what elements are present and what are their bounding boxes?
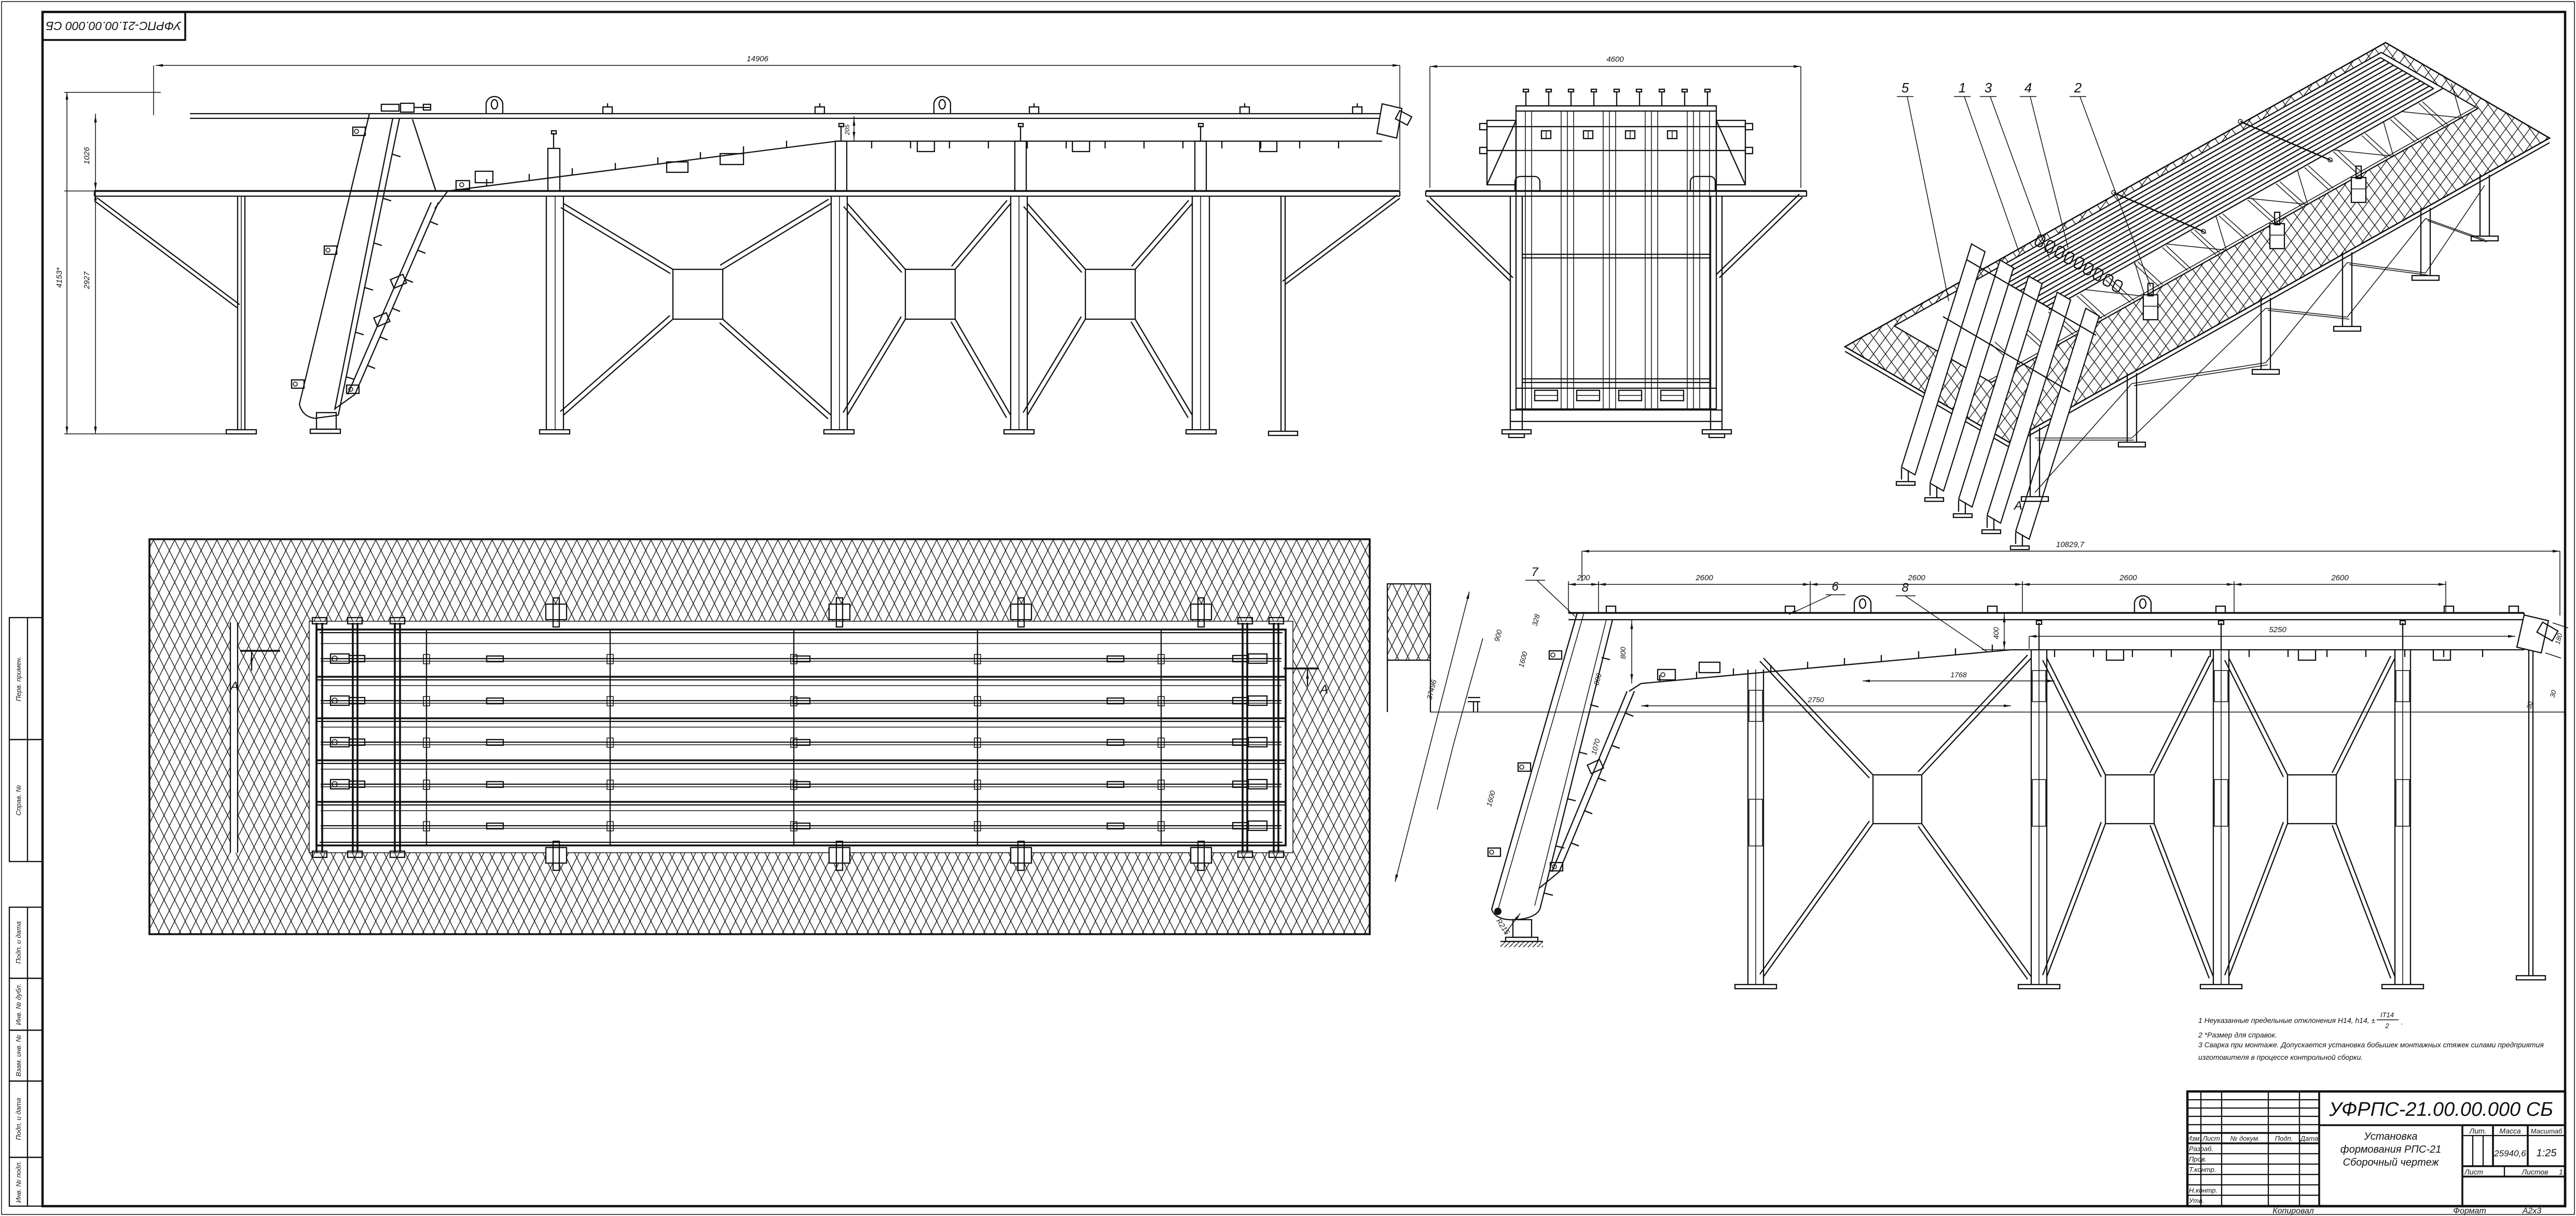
svg-text:Взам. инв. №: Взам. инв. № [15,1035,22,1076]
svg-text:14906: 14906 [747,54,768,63]
svg-text:2 *Размер для справок.: 2 *Размер для справок. [2198,1031,2277,1039]
svg-text:10829,7: 10829,7 [2056,540,2085,549]
svg-text:№ докум.: № докум. [2230,1135,2260,1142]
svg-text:2600: 2600 [1695,573,1713,582]
svg-text:1 Неуказанные предельные откл: 1 Неуказанные предельные отклонения Н14,… [2198,1016,2376,1024]
svg-text:2927: 2927 [82,271,91,290]
svg-text:Лист: Лист [2464,1168,2483,1176]
svg-text:УФРПС-21.00.00.000 СБ: УФРПС-21.00.00.000 СБ [2329,1099,2553,1121]
svg-text:5250: 5250 [2269,625,2286,634]
svg-text:Справ. №: Справ. № [15,785,22,815]
svg-text:2750: 2750 [1807,695,1824,704]
svg-text:.: . [2401,1018,2403,1026]
svg-text:4600: 4600 [1606,55,1624,64]
svg-text:Масштаб: Масштаб [2531,1127,2563,1135]
svg-text:4: 4 [2024,80,2032,95]
svg-text:Лист: Лист [2202,1135,2220,1142]
svg-text:2600: 2600 [2119,573,2137,582]
svg-text:А: А [1319,682,1328,696]
svg-text:3: 3 [1985,80,1992,95]
svg-text:1: 1 [1959,80,1966,95]
svg-text:1:25: 1:25 [2537,1147,2557,1159]
svg-text:IT14: IT14 [2380,1011,2394,1019]
svg-text:Подп.: Подп. [2275,1135,2293,1142]
svg-text:Формат: Формат [2453,1207,2486,1215]
svg-text:формования РПС-21: формования РПС-21 [2340,1144,2441,1155]
svg-text:200: 200 [1576,573,1590,582]
svg-text:Т.контр.: Т.контр. [2189,1166,2216,1173]
svg-text:1768: 1768 [1950,671,1966,679]
svg-text:6: 6 [1831,580,1839,594]
svg-text:5: 5 [1902,80,1909,95]
svg-text:400: 400 [1992,627,2000,639]
svg-text:Сборочный чертеж: Сборочный чертеж [2343,1157,2440,1168]
svg-text:УФРПС-21.00.00.000 СБ: УФРПС-21.00.00.000 СБ [46,19,182,33]
svg-text:7: 7 [1531,565,1539,579]
svg-text:А: А [229,679,239,693]
svg-text:Подп. и дата: Подп. и дата [15,1098,22,1140]
svg-text:Пров.: Пров. [2189,1155,2207,1163]
svg-text:Перв. примен.: Перв. примен. [15,657,22,701]
svg-text:Утв.: Утв. [2188,1197,2205,1205]
svg-text:Лит.: Лит. [2469,1127,2487,1135]
svg-text:8: 8 [1902,581,1909,595]
svg-text:3 Сварка при монтаже. Допуска: 3 Сварка при монтаже. Допускается устано… [2198,1041,2544,1049]
svg-text:2: 2 [2074,80,2082,95]
svg-text:А2х3: А2х3 [2522,1207,2542,1215]
svg-text:А: А [2013,499,2022,513]
svg-text:Дата: Дата [2299,1135,2318,1142]
svg-text:изготовителя в процессе контро: изготовителя в процессе контрольной сбор… [2198,1053,2363,1061]
svg-text:Инв. № подл.: Инв. № подл. [15,1161,22,1203]
svg-text:1: 1 [2559,1168,2563,1176]
svg-text:25940,6: 25940,6 [2494,1149,2526,1158]
svg-text:800: 800 [1619,647,1627,659]
svg-text:2600: 2600 [1907,573,1925,582]
svg-text:Н.контр.: Н.контр. [2189,1186,2217,1194]
svg-text:Листов: Листов [2522,1168,2549,1176]
svg-text:Копировал: Копировал [2272,1207,2314,1215]
svg-text:2: 2 [2385,1022,2389,1030]
svg-text:Масса: Масса [2499,1127,2521,1135]
svg-text:Установка: Установка [2363,1131,2417,1142]
svg-text:205: 205 [844,125,851,135]
svg-text:Инв. № дубл.: Инв. № дубл. [15,983,22,1025]
svg-text:Изм.: Изм. [2187,1135,2201,1142]
svg-text:1026: 1026 [82,147,91,165]
svg-text:Разраб.: Разраб. [2189,1145,2213,1153]
svg-text:Подп. и дата: Подп. и дата [15,921,22,963]
svg-text:2600: 2600 [2331,573,2349,582]
svg-text:4153*: 4153* [55,267,64,288]
